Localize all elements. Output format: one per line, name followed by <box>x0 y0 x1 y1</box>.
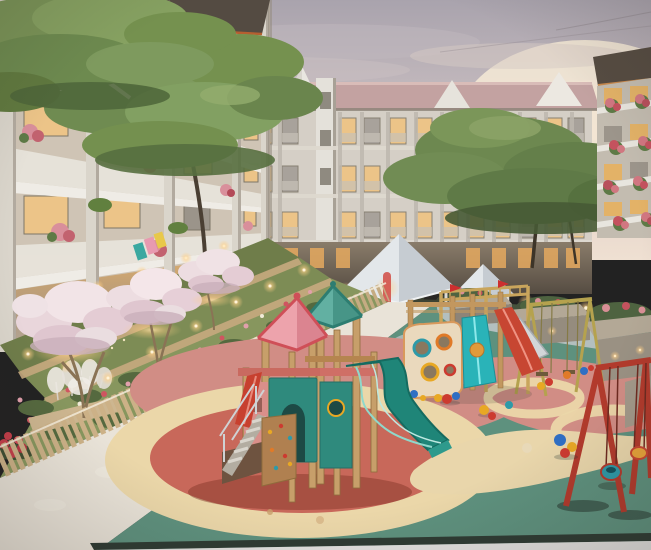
courtyard-playground-scene <box>0 0 651 550</box>
vignette <box>0 0 651 550</box>
screenshot-root <box>0 0 651 550</box>
